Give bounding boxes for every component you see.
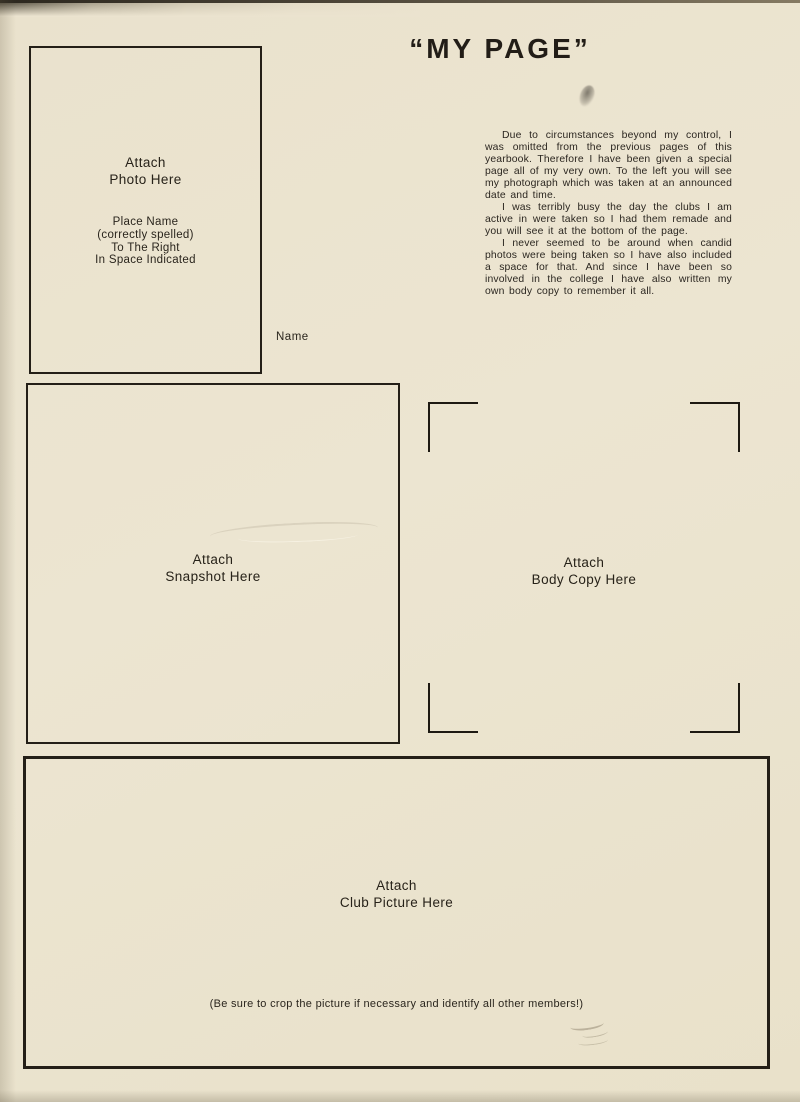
body-paragraph-1: Due to circumstances beyond my control, … [485,130,732,202]
crop-bracket-top-left-icon [428,402,478,452]
snapshot-box-label-line1: Attach [28,551,398,568]
instruction-line: To The Right [31,242,260,255]
crop-bracket-top-right-icon [690,402,740,452]
club-box-label-line1: Attach [26,877,767,894]
club-box-caption: (Be sure to crop the picture if necessar… [26,998,767,1010]
instruction-line: Place Name [31,216,260,229]
club-picture-attach-box: Attach Club Picture Here (Be sure to cro… [23,756,770,1069]
body-copy-area-label: Attach Body Copy Here [428,554,740,588]
photo-box-instructions: Place Name (correctly spelled) To The Ri… [31,216,260,267]
instruction-line: (correctly spelled) [31,229,260,242]
scan-edge-top-line [0,0,800,3]
ink-smudge [577,83,598,108]
snapshot-box-label: Attach Snapshot Here [28,551,398,585]
club-box-label-line2: Club Picture Here [26,894,767,911]
club-box-label: Attach Club Picture Here [26,877,767,911]
photo-attach-box: Attach Photo Here Place Name (correctly … [29,46,262,374]
crop-bracket-bottom-right-icon [690,683,740,733]
snapshot-box-label-line2: Snapshot Here [28,568,398,585]
instruction-line: In Space Indicated [31,254,260,267]
page-title: “MY PAGE” [388,33,612,65]
photo-box-label-line1: Attach [31,154,260,171]
body-copy-label-line1: Attach [428,554,740,571]
body-paragraph-3: I never seemed to be around when candid … [485,238,732,298]
snapshot-attach-box: Attach Snapshot Here [26,383,400,744]
name-label: Name [276,331,309,343]
body-copy-label-line2: Body Copy Here [428,571,740,588]
crop-bracket-bottom-left-icon [428,683,478,733]
scan-edge-left [0,0,16,1102]
body-copy-attach-area: Attach Body Copy Here [428,402,740,733]
body-copy-text: Due to circumstances beyond my control, … [485,130,732,298]
photo-box-label-line2: Photo Here [31,171,260,188]
yearbook-page: “MY PAGE” Attach Photo Here Place Name (… [0,0,800,1102]
body-paragraph-2: I was terribly busy the day the clubs I … [485,202,732,238]
photo-box-label: Attach Photo Here [31,154,260,188]
scan-edge-bottom [0,1090,800,1102]
